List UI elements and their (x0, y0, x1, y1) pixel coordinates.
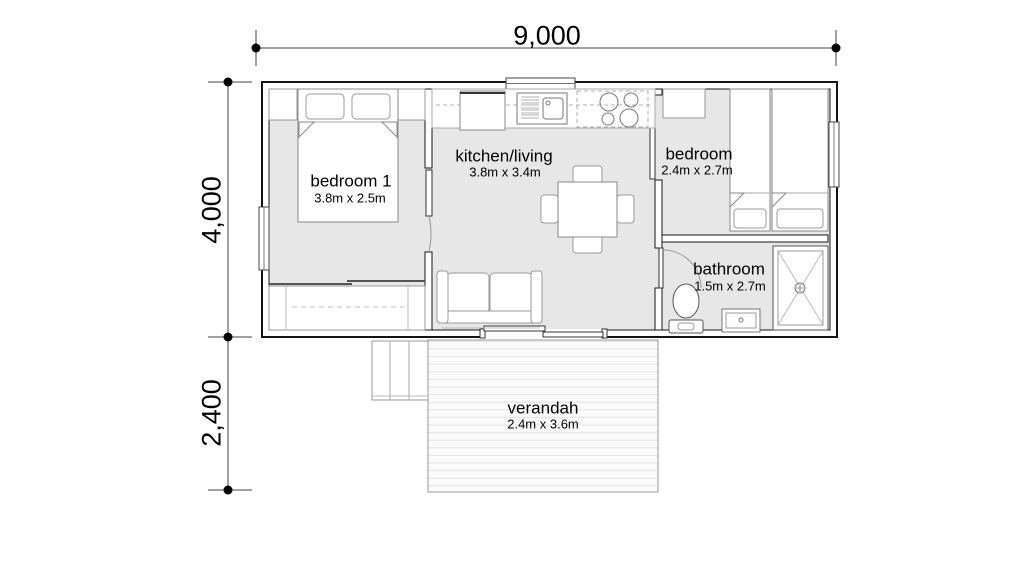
bedroom1-window (259, 207, 269, 270)
sink (517, 93, 567, 124)
dimension-height-verandah: 2,400 (199, 379, 226, 447)
floorplan-svg (0, 0, 1024, 576)
chair (573, 236, 602, 253)
kitchen-living-size: 3.8m x 3.4m (469, 166, 541, 179)
dimension-height-main: 4,000 (199, 176, 226, 244)
sofa (437, 271, 542, 328)
verandah-steps (372, 341, 428, 400)
bathroom-size: 1.5m x 2.7m (694, 280, 766, 293)
bedroom1-label: bedroom 1 (310, 173, 391, 190)
vanity-basin (722, 309, 760, 332)
bedroom1-size: 3.8m x 2.5m (314, 192, 386, 205)
kitchen-window (506, 78, 575, 89)
bedroom2-size: 2.4m x 2.7m (661, 164, 733, 177)
bedside-table (397, 89, 425, 120)
chair (617, 195, 634, 223)
verandah-size: 2.4m x 3.6m (507, 418, 579, 431)
bedroom2-window (829, 122, 839, 187)
kitchen-living-label: kitchen/living (455, 148, 552, 165)
single-bed (772, 89, 828, 231)
fridge (460, 91, 505, 130)
bathroom-label: bathroom (693, 261, 765, 278)
shower (773, 246, 828, 330)
chair (541, 195, 558, 223)
shelf (663, 89, 705, 118)
bedside-table (269, 89, 297, 120)
wardrobe (269, 281, 425, 330)
dining-table (558, 182, 617, 237)
chair (573, 166, 602, 183)
dimension-width-total: 9,000 (513, 23, 581, 50)
bedroom2-label: bedroom (665, 146, 732, 163)
floor-plan-canvas: 9,000 4,000 2,400 bedroom 1 3.8m x 2.5m … (0, 0, 1024, 576)
single-bed (730, 89, 770, 231)
verandah-label: verandah (508, 400, 579, 417)
